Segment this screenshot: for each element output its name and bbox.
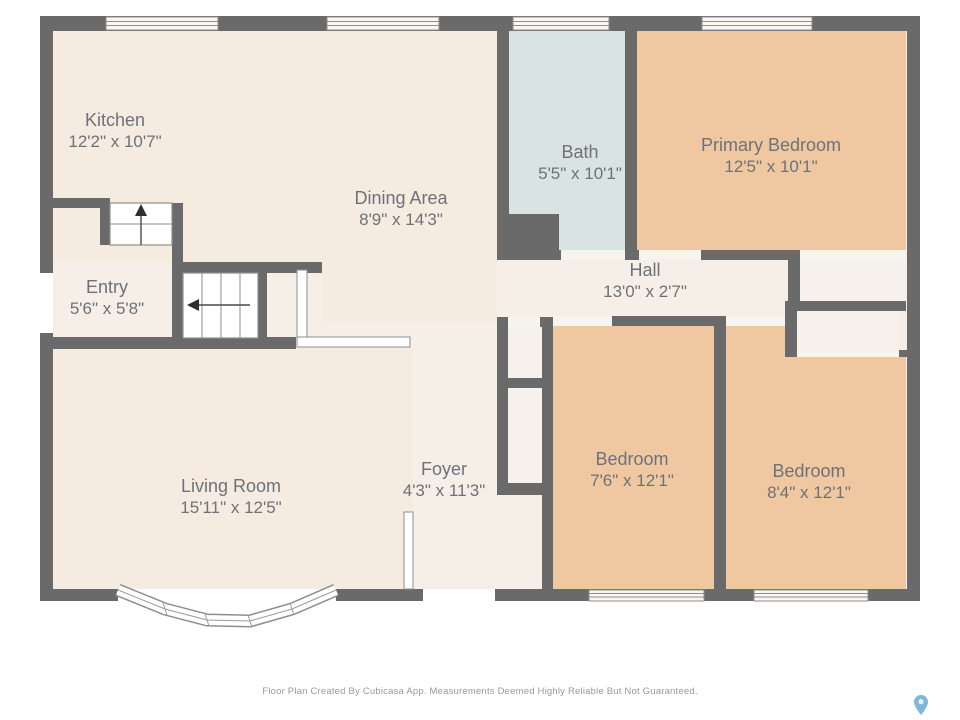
bath-window (513, 17, 609, 30)
bath-west-wall (497, 31, 509, 214)
closet-shelf-wall-2 (497, 483, 553, 495)
hall-closet-jamb (540, 317, 553, 327)
closet-divider-wall (785, 301, 906, 311)
primary-closet-west-wall (788, 250, 800, 301)
foyer-closet-west-wall (497, 317, 508, 495)
bedroom2-closet-floor (797, 311, 899, 350)
hall-closet-floor (508, 327, 542, 483)
living-room-floor (53, 349, 413, 589)
hall-north-wall-c (701, 250, 800, 260)
primary-closet-opening (800, 250, 906, 260)
bedroom2-floor-east (785, 357, 906, 589)
bedroom2-floor-west (726, 326, 785, 589)
kitchen-window (106, 17, 218, 30)
bedroom1-floor (553, 326, 714, 589)
bedroom1-window (589, 590, 704, 601)
bedroom-divider-wall (714, 316, 726, 589)
stair-east-wall (258, 273, 267, 338)
bath-floor (509, 31, 625, 215)
stair-west-wall (100, 208, 110, 245)
front-door-leaf (404, 512, 413, 589)
entry-door-opening (40, 273, 53, 333)
hall-closet-opening (508, 317, 540, 327)
kitchen-stub-wall (40, 198, 110, 208)
staircase-upper-flight (110, 203, 172, 245)
railing-horizontal (297, 337, 410, 347)
primary-door-opening (639, 250, 701, 260)
entry-living-wall (40, 337, 296, 349)
footer-disclaimer: Floor Plan Created By Cubicasa App. Meas… (262, 686, 697, 697)
hall-south-wall (612, 316, 722, 326)
hall-north-wall-a (497, 250, 561, 260)
bath-floor-lower (559, 214, 625, 250)
bath-door-opening (561, 250, 625, 260)
primary-bedroom-window (702, 17, 812, 30)
bedroom1-west-wall (542, 317, 553, 589)
stair-middle-wall (172, 203, 183, 338)
dining-window (327, 17, 439, 30)
closet-jamb-left (785, 350, 797, 357)
hall-west-floor (322, 262, 497, 322)
exterior-wall-right (907, 16, 920, 601)
closet-shelf-wall-1 (497, 378, 553, 388)
floor-plan-drawing (0, 0, 960, 720)
primary-bedroom-floor (637, 31, 906, 250)
staircase-lower-flight (183, 273, 258, 338)
bath-primary-wall (625, 31, 637, 250)
closet-jamb-right (899, 350, 907, 357)
bedroom2-closet-west-wall (785, 311, 797, 350)
floor-plan-page: Kitchen 12'2" x 10'7" Dining Area 8'9" x… (0, 0, 960, 720)
front-door-opening (423, 589, 495, 601)
railing-vertical (297, 270, 307, 345)
bedroom2-window (754, 590, 868, 601)
bedroom2-closet-opening (797, 350, 899, 357)
hall-north-wall-b (625, 250, 639, 260)
location-pin-icon (913, 694, 929, 716)
bedroom2-door-opening (726, 316, 785, 326)
bay-window (118, 589, 336, 627)
bath-corner-block (497, 214, 559, 250)
bedroom1-door-opening (553, 316, 612, 326)
primary-closet-floor (800, 260, 906, 301)
